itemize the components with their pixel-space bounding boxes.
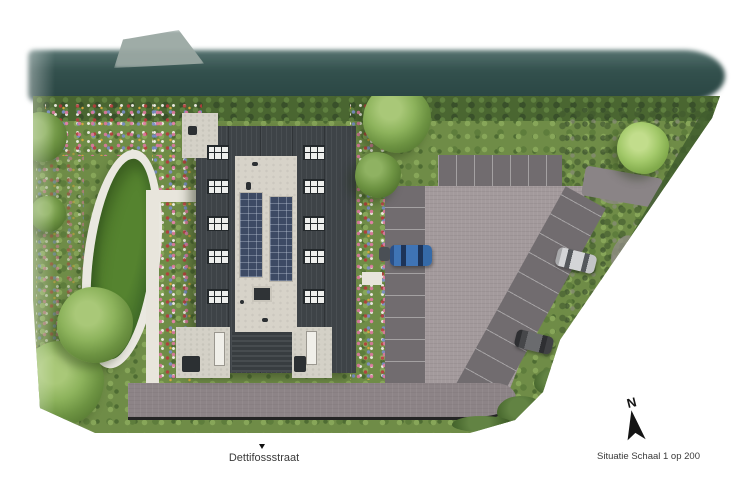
skylight-window [311, 224, 316, 229]
skylight-group [303, 179, 325, 194]
skylight-window [209, 297, 214, 302]
roof-object [262, 318, 268, 322]
skylight-window [305, 218, 310, 223]
terrace-furniture [182, 356, 200, 372]
skylight-window [318, 257, 323, 262]
skylight-group [303, 249, 325, 264]
skylight-group [207, 249, 229, 264]
skylight-group [207, 216, 229, 231]
skylight-window [318, 153, 323, 158]
skylight-window [305, 291, 310, 296]
skylight-window [215, 257, 220, 262]
bush [452, 416, 512, 432]
north-arrow-icon: N [612, 394, 656, 446]
bush [534, 368, 574, 396]
terrace-lounger [214, 332, 225, 366]
skylight-window [318, 218, 323, 223]
skylight-window [222, 291, 227, 296]
parking-access-path [362, 272, 382, 285]
skylight-window [311, 291, 316, 296]
dock-platform [114, 30, 204, 68]
skylight-window [311, 251, 316, 256]
skylight-window [209, 251, 214, 256]
skylight-window [215, 224, 220, 229]
skylight-window [222, 153, 227, 158]
street-label: Dettifossstraat [204, 452, 324, 464]
street-road [128, 383, 516, 420]
site-plan: N Dettifossstraat Situatie Schaal 1 op 2… [0, 0, 750, 500]
street-marker-icon [259, 444, 265, 449]
skylight-window [318, 181, 323, 186]
skylight-window [305, 187, 310, 192]
skylight-window [222, 297, 227, 302]
parking-row-top [438, 155, 562, 187]
terrace-furniture [294, 356, 306, 372]
skylight-window [305, 257, 310, 262]
skylight-window [305, 153, 310, 158]
skylight-window [305, 181, 310, 186]
skylight-group [303, 216, 325, 231]
solar-panel-array-right [269, 196, 293, 282]
skylight-window [209, 153, 214, 158]
north-arrow-glyph [623, 409, 646, 443]
skylight-window [215, 147, 220, 152]
skylight-window [311, 153, 316, 158]
skylight-window [311, 181, 316, 186]
skylight-window [215, 181, 220, 186]
north-label: N [625, 394, 638, 411]
skylight-window [305, 297, 310, 302]
roof-hatch [252, 286, 272, 302]
tree-by-parking [355, 152, 401, 198]
skylight-window [305, 147, 310, 152]
garden-path-vertical [146, 190, 159, 384]
skylight-window [222, 147, 227, 152]
skylight-window [215, 251, 220, 256]
skylight-window [305, 251, 310, 256]
skylight-group [303, 145, 325, 160]
skylight-window [222, 218, 227, 223]
skylight-group [207, 289, 229, 304]
skylight-window [222, 224, 227, 229]
skylight-window [215, 218, 220, 223]
skylight-window [215, 297, 220, 302]
skylight-window [318, 291, 323, 296]
solar-panel-array-left [239, 192, 263, 278]
skylight-window [215, 291, 220, 296]
skylight-window [318, 297, 323, 302]
stone-patch [586, 293, 620, 321]
terrace-table [188, 126, 197, 135]
roof-object [252, 162, 258, 166]
skylight-window [311, 218, 316, 223]
car-blue [390, 245, 432, 266]
skylight-window [311, 257, 316, 262]
tree-pond-side [57, 287, 133, 363]
skylight-group [303, 289, 325, 304]
skylight-window [209, 224, 214, 229]
skylight-window [222, 187, 227, 192]
skylight-window [209, 291, 214, 296]
tree-west-small [30, 196, 66, 232]
tree-northwest [17, 112, 67, 162]
stone-patch [608, 324, 632, 342]
skylight-window [222, 257, 227, 262]
skylight-window [222, 251, 227, 256]
skylight-window [311, 147, 316, 152]
tree-northeast [617, 122, 669, 174]
skylight-group [207, 179, 229, 194]
parking-row-left [385, 186, 425, 384]
bush [566, 330, 602, 356]
skylight-window [305, 224, 310, 229]
skylight-window [209, 147, 214, 152]
skylight-window [318, 147, 323, 152]
terrace-lounger [306, 331, 317, 365]
skylight-window [318, 251, 323, 256]
roof-slats-bottom [232, 332, 294, 372]
skylight-window [209, 218, 214, 223]
skylight-window [215, 153, 220, 158]
skylight-window [222, 181, 227, 186]
skylight-window [209, 257, 214, 262]
skylight-window [311, 187, 316, 192]
skylight-window [311, 297, 316, 302]
scale-label: Situatie Schaal 1 op 200 [597, 451, 737, 462]
roof-object [246, 182, 251, 190]
skylight-group [207, 145, 229, 160]
skylight-window [209, 181, 214, 186]
skylight-window [215, 187, 220, 192]
north-arrow: N [612, 394, 656, 451]
vehicle-small [379, 247, 390, 261]
skylight-window [209, 187, 214, 192]
skylight-window [318, 187, 323, 192]
roof-object [240, 300, 244, 304]
skylight-window [318, 224, 323, 229]
